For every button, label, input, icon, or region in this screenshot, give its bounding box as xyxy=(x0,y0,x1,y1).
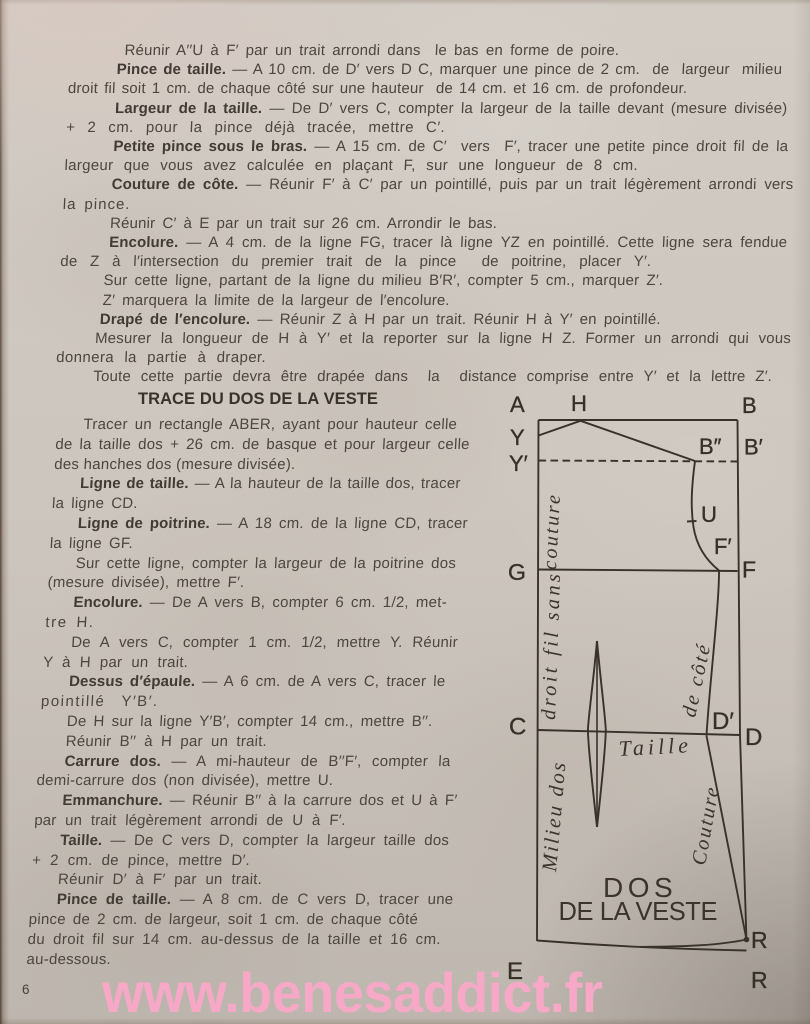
svg-text:droit fil sans: droit fil sans xyxy=(538,570,565,720)
svg-text:F: F xyxy=(742,557,756,583)
svg-text:H: H xyxy=(571,391,587,416)
svg-text:Couture: Couture xyxy=(688,784,724,867)
svg-text:B″: B″ xyxy=(699,434,722,459)
svg-text:Y: Y xyxy=(510,425,525,450)
svg-text:DE LA VESTE: DE LA VESTE xyxy=(559,898,718,926)
svg-text:G: G xyxy=(508,559,526,585)
svg-text:Taille: Taille xyxy=(618,732,693,761)
svg-text:R: R xyxy=(751,927,768,953)
svg-text:D′: D′ xyxy=(712,708,734,735)
svg-text:D: D xyxy=(745,724,762,751)
svg-text:R: R xyxy=(751,967,768,993)
svg-text:Milieu dos: Milieu dos xyxy=(537,760,571,874)
svg-text:de côté: de côté xyxy=(678,641,715,719)
svg-text:C: C xyxy=(509,714,526,741)
svg-text:A: A xyxy=(510,392,525,417)
svg-text:Y′: Y′ xyxy=(509,451,528,476)
svg-text:F′: F′ xyxy=(714,534,732,559)
svg-text:B′: B′ xyxy=(744,435,763,460)
svg-text:couture: couture xyxy=(539,492,565,570)
svg-text:E: E xyxy=(507,958,523,985)
svg-text:B: B xyxy=(742,393,757,418)
svg-text:U: U xyxy=(701,502,717,527)
